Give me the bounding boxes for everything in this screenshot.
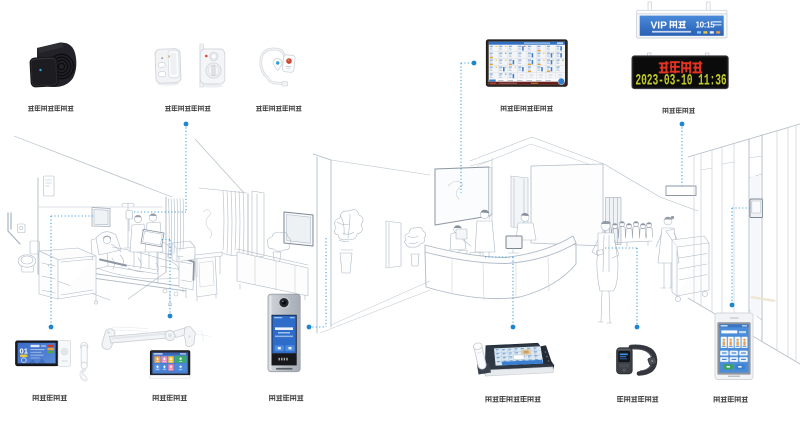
- svg-text:01: 01: [20, 346, 29, 355]
- svg-text:VIP: VIP: [651, 21, 668, 32]
- svg-text:10:15: 10:15: [696, 20, 716, 29]
- svg-text:2023-03-10 11:36: 2023-03-10 11:36: [635, 71, 726, 89]
